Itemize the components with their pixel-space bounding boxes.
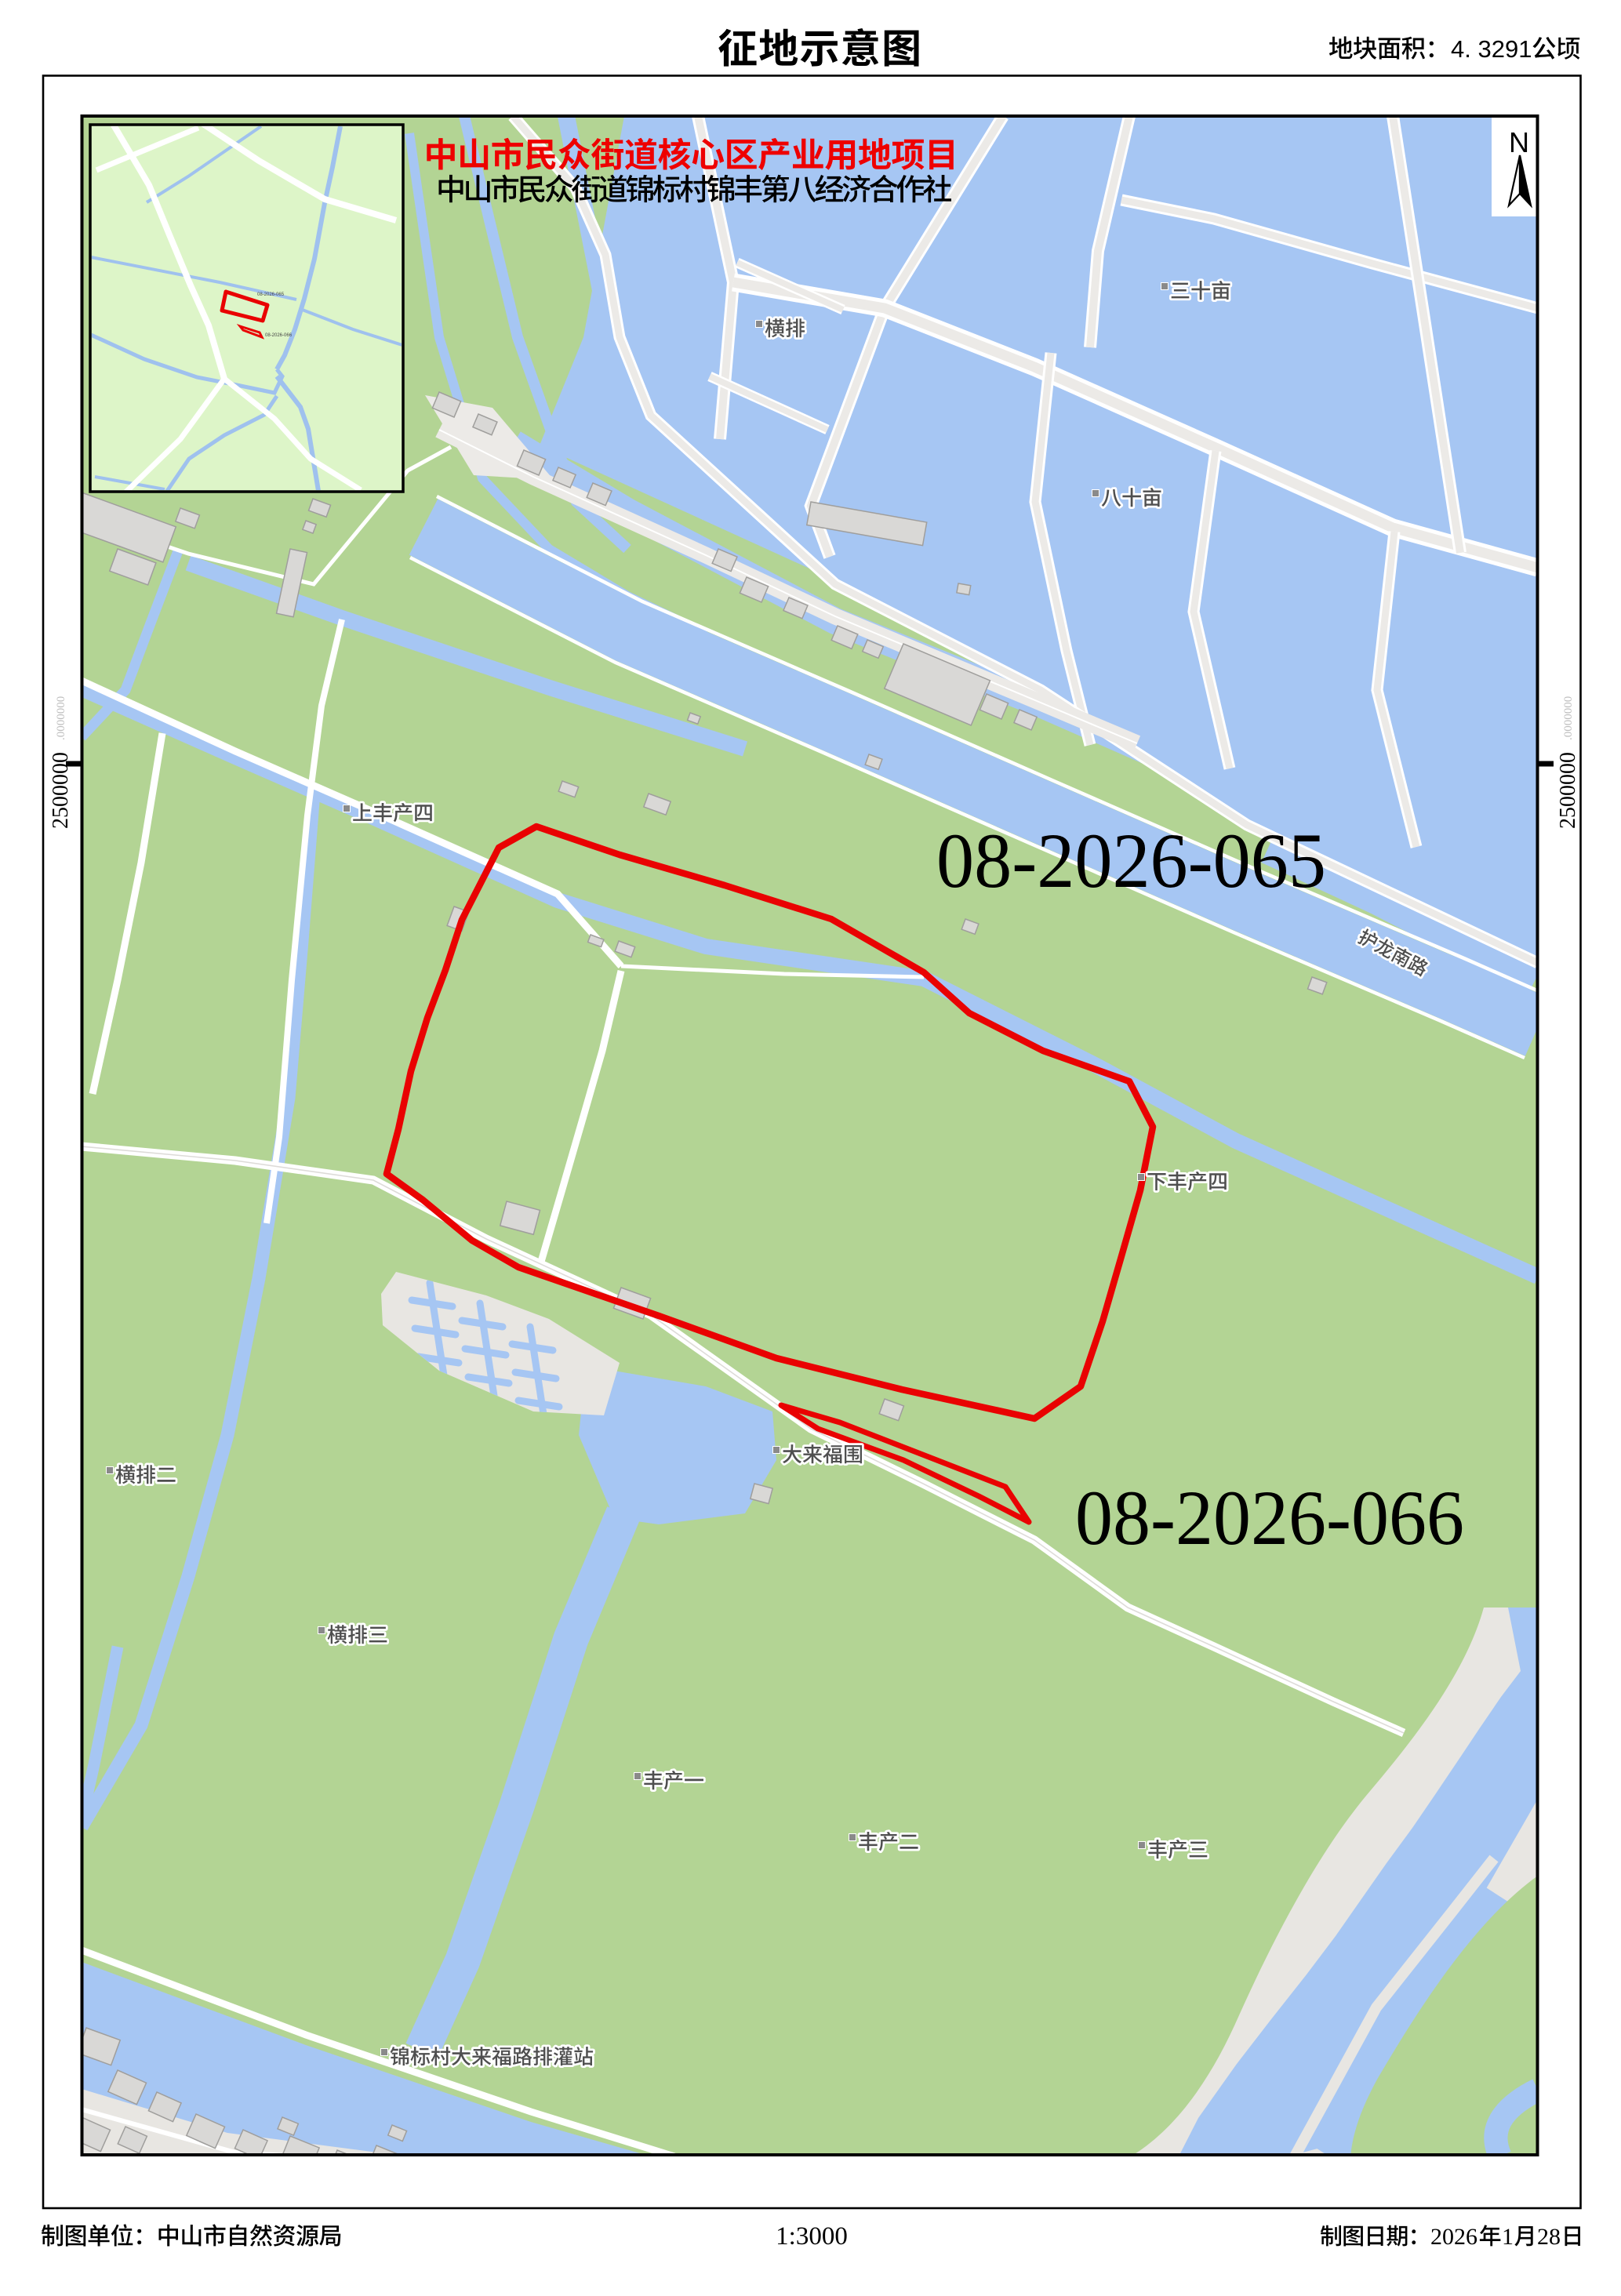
svg-text:28: 28 [1537, 2224, 1561, 2250]
svg-text:1:3000: 1:3000 [776, 2222, 848, 2251]
svg-text:.0000000: .0000000 [1562, 696, 1575, 740]
svg-text:08-2026-065: 08-2026-065 [257, 292, 285, 297]
svg-text:08-2026-066: 08-2026-066 [1075, 1474, 1464, 1561]
svg-text:4. 3291: 4. 3291 [1451, 35, 1532, 63]
svg-text:N: N [1509, 126, 1529, 158]
svg-text:2026: 2026 [1430, 2224, 1477, 2250]
svg-text:08-2026-065: 08-2026-065 [936, 817, 1326, 904]
svg-text:.0000000: .0000000 [55, 696, 67, 740]
svg-text:1: 1 [1502, 2224, 1514, 2250]
svg-text:2500000: 2500000 [1556, 752, 1580, 829]
svg-text:08-2026-066: 08-2026-066 [265, 333, 293, 338]
